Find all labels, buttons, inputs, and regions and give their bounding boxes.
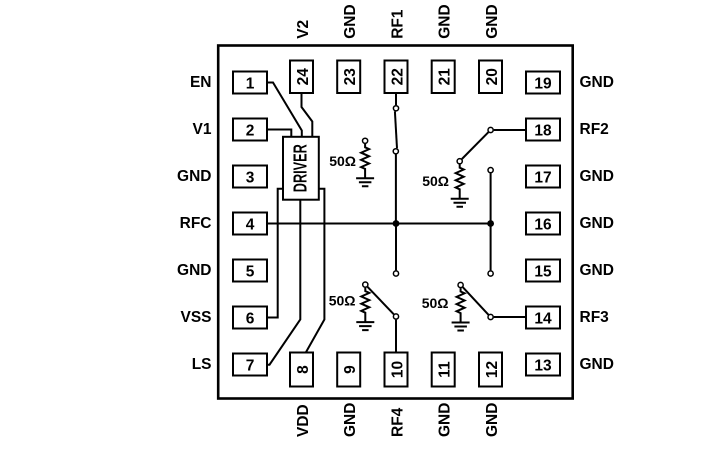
svg-text:GND: GND: [580, 168, 614, 185]
svg-text:12: 12: [484, 361, 501, 378]
svg-text:3: 3: [246, 169, 255, 186]
svg-text:14: 14: [534, 310, 552, 327]
svg-text:50Ω: 50Ω: [329, 293, 356, 309]
svg-text:50Ω: 50Ω: [422, 173, 449, 189]
svg-text:V1: V1: [193, 121, 212, 138]
svg-text:GND: GND: [437, 4, 454, 38]
svg-text:16: 16: [534, 216, 552, 233]
svg-text:RF2: RF2: [580, 121, 609, 138]
svg-text:2: 2: [246, 122, 255, 139]
svg-text:18: 18: [534, 122, 552, 139]
svg-text:50Ω: 50Ω: [422, 295, 449, 311]
svg-text:GND: GND: [342, 4, 359, 38]
svg-text:GND: GND: [484, 403, 501, 437]
svg-text:GND: GND: [580, 215, 614, 232]
svg-text:4: 4: [246, 216, 255, 233]
svg-text:20: 20: [484, 68, 501, 85]
svg-text:VDD: VDD: [295, 404, 312, 437]
svg-text:7: 7: [246, 357, 255, 374]
svg-text:17: 17: [534, 169, 551, 186]
svg-text:10: 10: [389, 361, 406, 378]
svg-text:GND: GND: [437, 403, 454, 437]
svg-text:GND: GND: [177, 262, 211, 279]
svg-text:15: 15: [534, 263, 552, 280]
svg-text:23: 23: [342, 68, 359, 86]
svg-text:RF4: RF4: [389, 407, 406, 437]
svg-text:GND: GND: [484, 4, 501, 38]
svg-text:GND: GND: [580, 356, 614, 373]
svg-text:GND: GND: [177, 168, 211, 185]
svg-text:21: 21: [437, 68, 454, 86]
svg-text:VSS: VSS: [180, 309, 211, 326]
svg-text:1: 1: [246, 75, 255, 92]
svg-text:RF1: RF1: [389, 9, 406, 39]
svg-text:5: 5: [246, 263, 255, 280]
svg-text:RF3: RF3: [580, 309, 610, 326]
svg-text:9: 9: [342, 365, 359, 374]
svg-text:13: 13: [534, 357, 552, 374]
svg-text:V2: V2: [295, 20, 312, 39]
svg-text:RFC: RFC: [180, 215, 212, 232]
svg-text:LS: LS: [192, 356, 212, 373]
svg-text:8: 8: [295, 365, 312, 374]
svg-text:22: 22: [389, 68, 406, 85]
svg-text:24: 24: [295, 68, 312, 86]
svg-text:DRIVER: DRIVER: [291, 144, 311, 192]
svg-text:GND: GND: [580, 262, 614, 279]
svg-text:GND: GND: [580, 74, 614, 91]
svg-text:GND: GND: [342, 403, 359, 437]
svg-text:19: 19: [534, 75, 552, 92]
svg-text:EN: EN: [190, 74, 212, 91]
svg-text:50Ω: 50Ω: [329, 153, 356, 169]
svg-text:6: 6: [246, 310, 255, 327]
svg-text:11: 11: [437, 361, 454, 378]
